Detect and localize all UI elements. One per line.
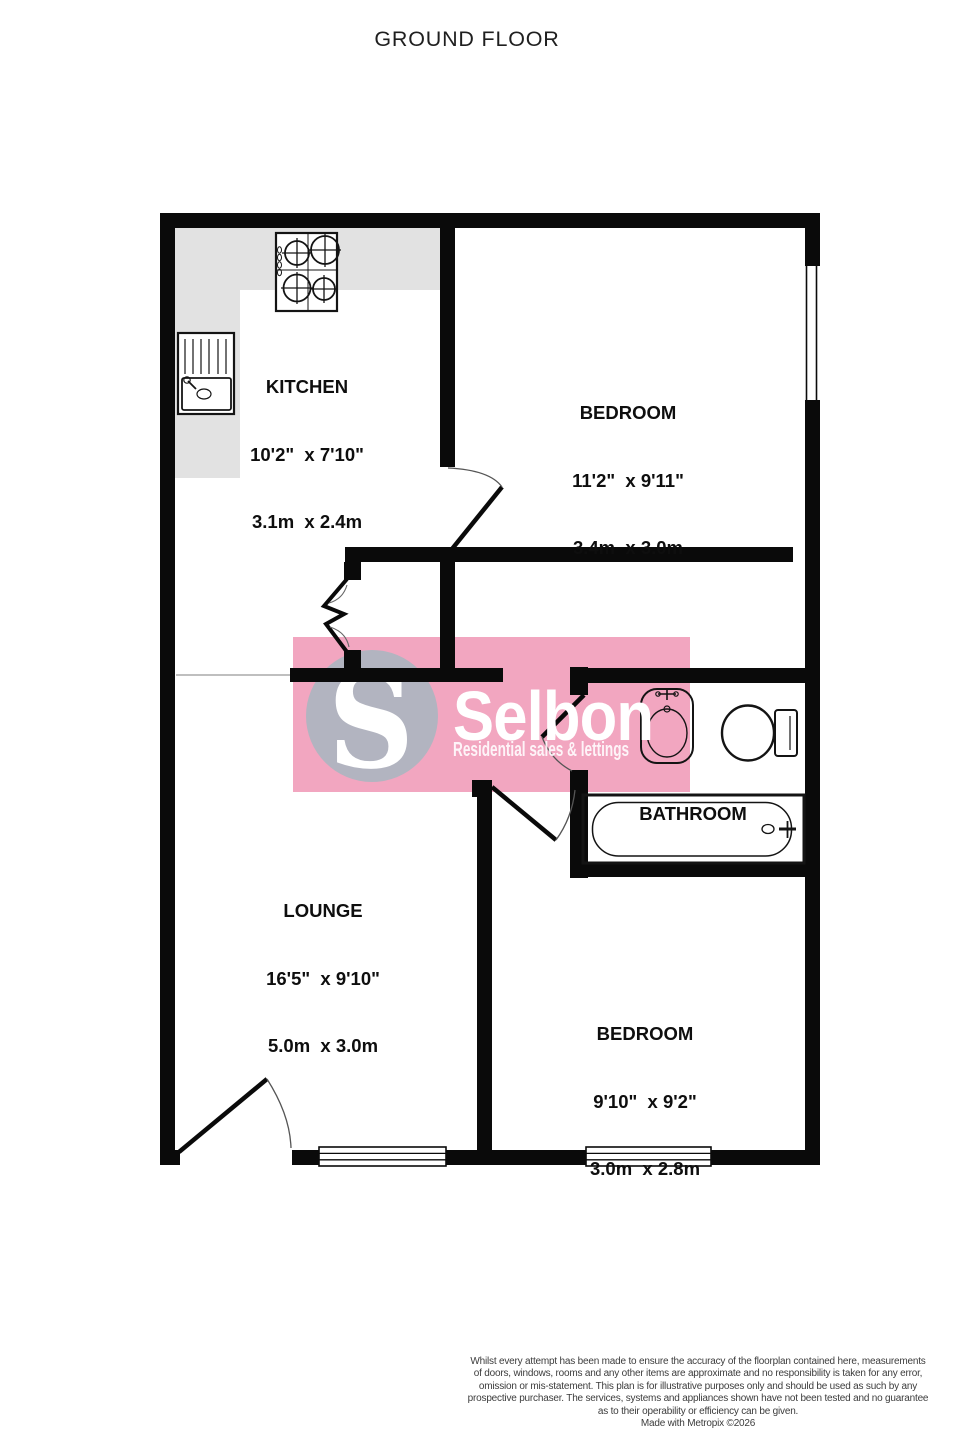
room-dims-metric: 3.1m x 2.4m — [250, 511, 364, 534]
room-dims-imperial: 10'2" x 7'10" — [250, 444, 364, 467]
stove-icon — [276, 233, 341, 311]
room-dims-imperial: 9'10" x 9'2" — [590, 1091, 700, 1114]
disclaimer-line: as to their operability or efficiency ca… — [458, 1406, 938, 1418]
door-icon — [179, 468, 584, 1152]
room-label-bedroom1: BEDROOM 11'2" x 9'11" 3.4m x 3.0m — [572, 357, 684, 605]
room-label-kitchen: KITCHEN 10'2" x 7'10" 3.1m x 2.4m — [250, 331, 364, 579]
credit-line: Made with Metropix ©2026 — [458, 1418, 938, 1430]
room-dims-imperial: 11'2" x 9'11" — [572, 470, 684, 493]
room-dims-imperial: 16'5" x 9'10" — [266, 968, 380, 991]
disclaimer-line: Whilst every attempt has been made to en… — [458, 1356, 938, 1368]
room-dims-metric: 5.0m x 3.0m — [266, 1035, 380, 1058]
room-dims-metric: 3.0m x 2.8m — [590, 1158, 700, 1181]
kitchen-sink-icon — [178, 333, 234, 414]
disclaimer-line: prospective purchaser. The services, sys… — [458, 1393, 938, 1405]
room-name: BATHROOM — [639, 803, 747, 826]
toilet-icon — [722, 706, 797, 761]
room-label-lounge: LOUNGE 16'5" x 9'10" 5.0m x 3.0m — [266, 855, 380, 1103]
room-label-bathroom: BATHROOM — [639, 758, 747, 871]
room-name: KITCHEN — [250, 376, 364, 399]
room-label-bedroom2: BEDROOM 9'10" x 9'2" 3.0m x 2.8m — [590, 978, 700, 1226]
disclaimer-line: of doors, windows, rooms and any other i… — [458, 1368, 938, 1380]
disclaimer: Whilst every attempt has been made to en… — [458, 1356, 938, 1430]
room-name: BEDROOM — [590, 1023, 700, 1046]
floorplan-page: GROUND FLOOR S — [0, 0, 980, 1428]
room-name: BEDROOM — [572, 402, 684, 425]
disclaimer-line: omission or mis-statement. This plan is … — [458, 1381, 938, 1393]
room-name: LOUNGE — [266, 900, 380, 923]
watermark-tagline: Residential sales & lettings — [453, 740, 629, 760]
room-dims-metric: 3.4m x 3.0m — [572, 537, 684, 560]
